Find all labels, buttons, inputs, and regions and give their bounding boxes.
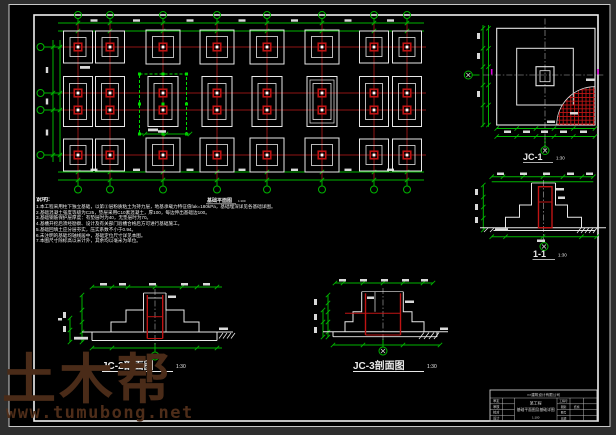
notes-list: 1.本工程采用柱下独立基础，以第②层粉质粘土为持力层，地基承载力特征值fak=1…	[36, 204, 328, 244]
section-1-1-label: 1-1	[533, 249, 546, 259]
title-block-field-label: 审核	[493, 404, 500, 409]
title-block-drawing-name: 基础平面图及基础详图	[517, 407, 555, 412]
title-block-company: ××建筑设计有限公司	[527, 392, 560, 397]
title-block-project: 某工程	[530, 400, 542, 406]
title-block-field-label: 校对	[493, 410, 500, 415]
section-1-1-scale: 1:30	[558, 253, 567, 258]
title-block-field-label: 日期	[561, 416, 567, 420]
title-block-scale: 1:100	[532, 416, 540, 420]
title-block-field-label: 图别	[561, 405, 567, 409]
title-block-field-value: 结施	[574, 405, 580, 409]
jc1-scale: 1:30	[556, 156, 565, 161]
note-line: 7.本图尺寸除标高以米计外，其余均以毫米为单位。	[36, 238, 328, 244]
watermark-logo: 土木帮	[2, 352, 173, 408]
jc2-scale: 1:30	[176, 364, 186, 370]
title-block-field-label: 审定	[493, 398, 500, 403]
title-block-field-label: 图号	[561, 411, 567, 415]
jc1-label: JC-1	[523, 152, 543, 162]
title-block-field-label: 工程号	[559, 399, 568, 403]
cad-drawing-viewport: 基础平面图 1:100 JC-1 1:30 1-1 1:30 JC-2剖面图 1…	[0, 0, 616, 435]
notes-heading: 说明:	[36, 197, 328, 204]
general-notes: 说明: 1.本工程采用柱下独立基础，以第②层粉质粘土为持力层，地基承载力特征值f…	[36, 197, 328, 244]
title-block-field-label: 设计	[493, 415, 500, 420]
watermark-url: www.tumubong.net	[6, 403, 194, 423]
jc3-label: JC-3剖面图	[353, 359, 405, 372]
jc3-scale: 1:30	[427, 364, 437, 370]
